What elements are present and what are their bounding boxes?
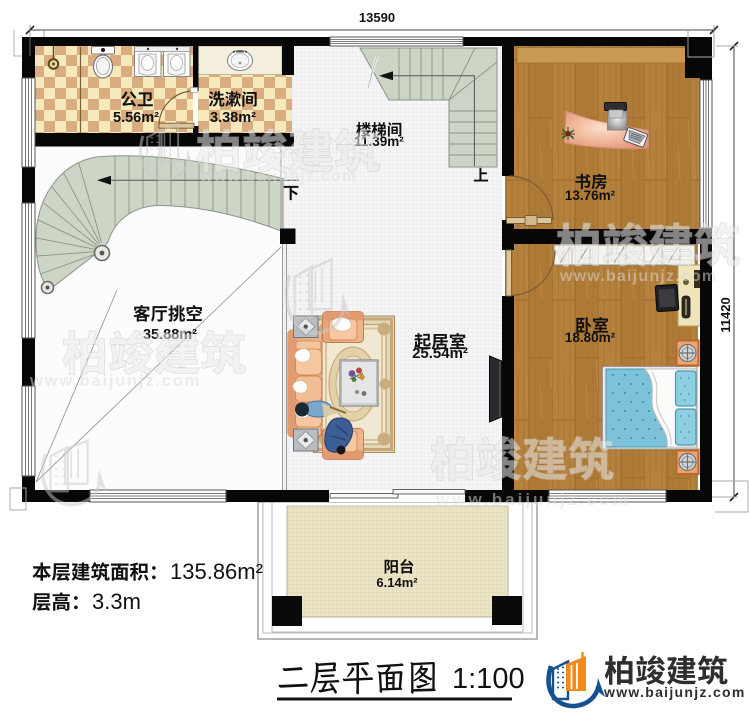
- svg-text:3.3m: 3.3m: [92, 589, 141, 614]
- svg-text:www.baijunjz.com: www.baijunjz.com: [603, 684, 746, 700]
- svg-text:135.86m²: 135.86m²: [170, 559, 263, 584]
- svg-text:18.80m²: 18.80m²: [565, 330, 616, 345]
- svg-text:13590: 13590: [359, 10, 395, 25]
- svg-text:25.54m²: 25.54m²: [412, 345, 468, 362]
- svg-text:6.14m²: 6.14m²: [376, 575, 418, 590]
- svg-text:www.baijunjz.com: www.baijunjz.com: [199, 168, 357, 185]
- svg-text:www.baijunjz.com: www.baijunjz.com: [29, 372, 201, 390]
- svg-text:5.56m²: 5.56m²: [113, 110, 159, 126]
- svg-text:www.baijunjz.com: www.baijunjz.com: [559, 268, 717, 285]
- svg-text:11420: 11420: [718, 297, 733, 332]
- svg-text:www.baijunjz.com: www.baijunjz.com: [435, 490, 631, 509]
- svg-text:13.76m²: 13.76m²: [565, 188, 616, 203]
- svg-text:3.38m²: 3.38m²: [210, 110, 256, 126]
- svg-text:1:100: 1:100: [452, 663, 525, 695]
